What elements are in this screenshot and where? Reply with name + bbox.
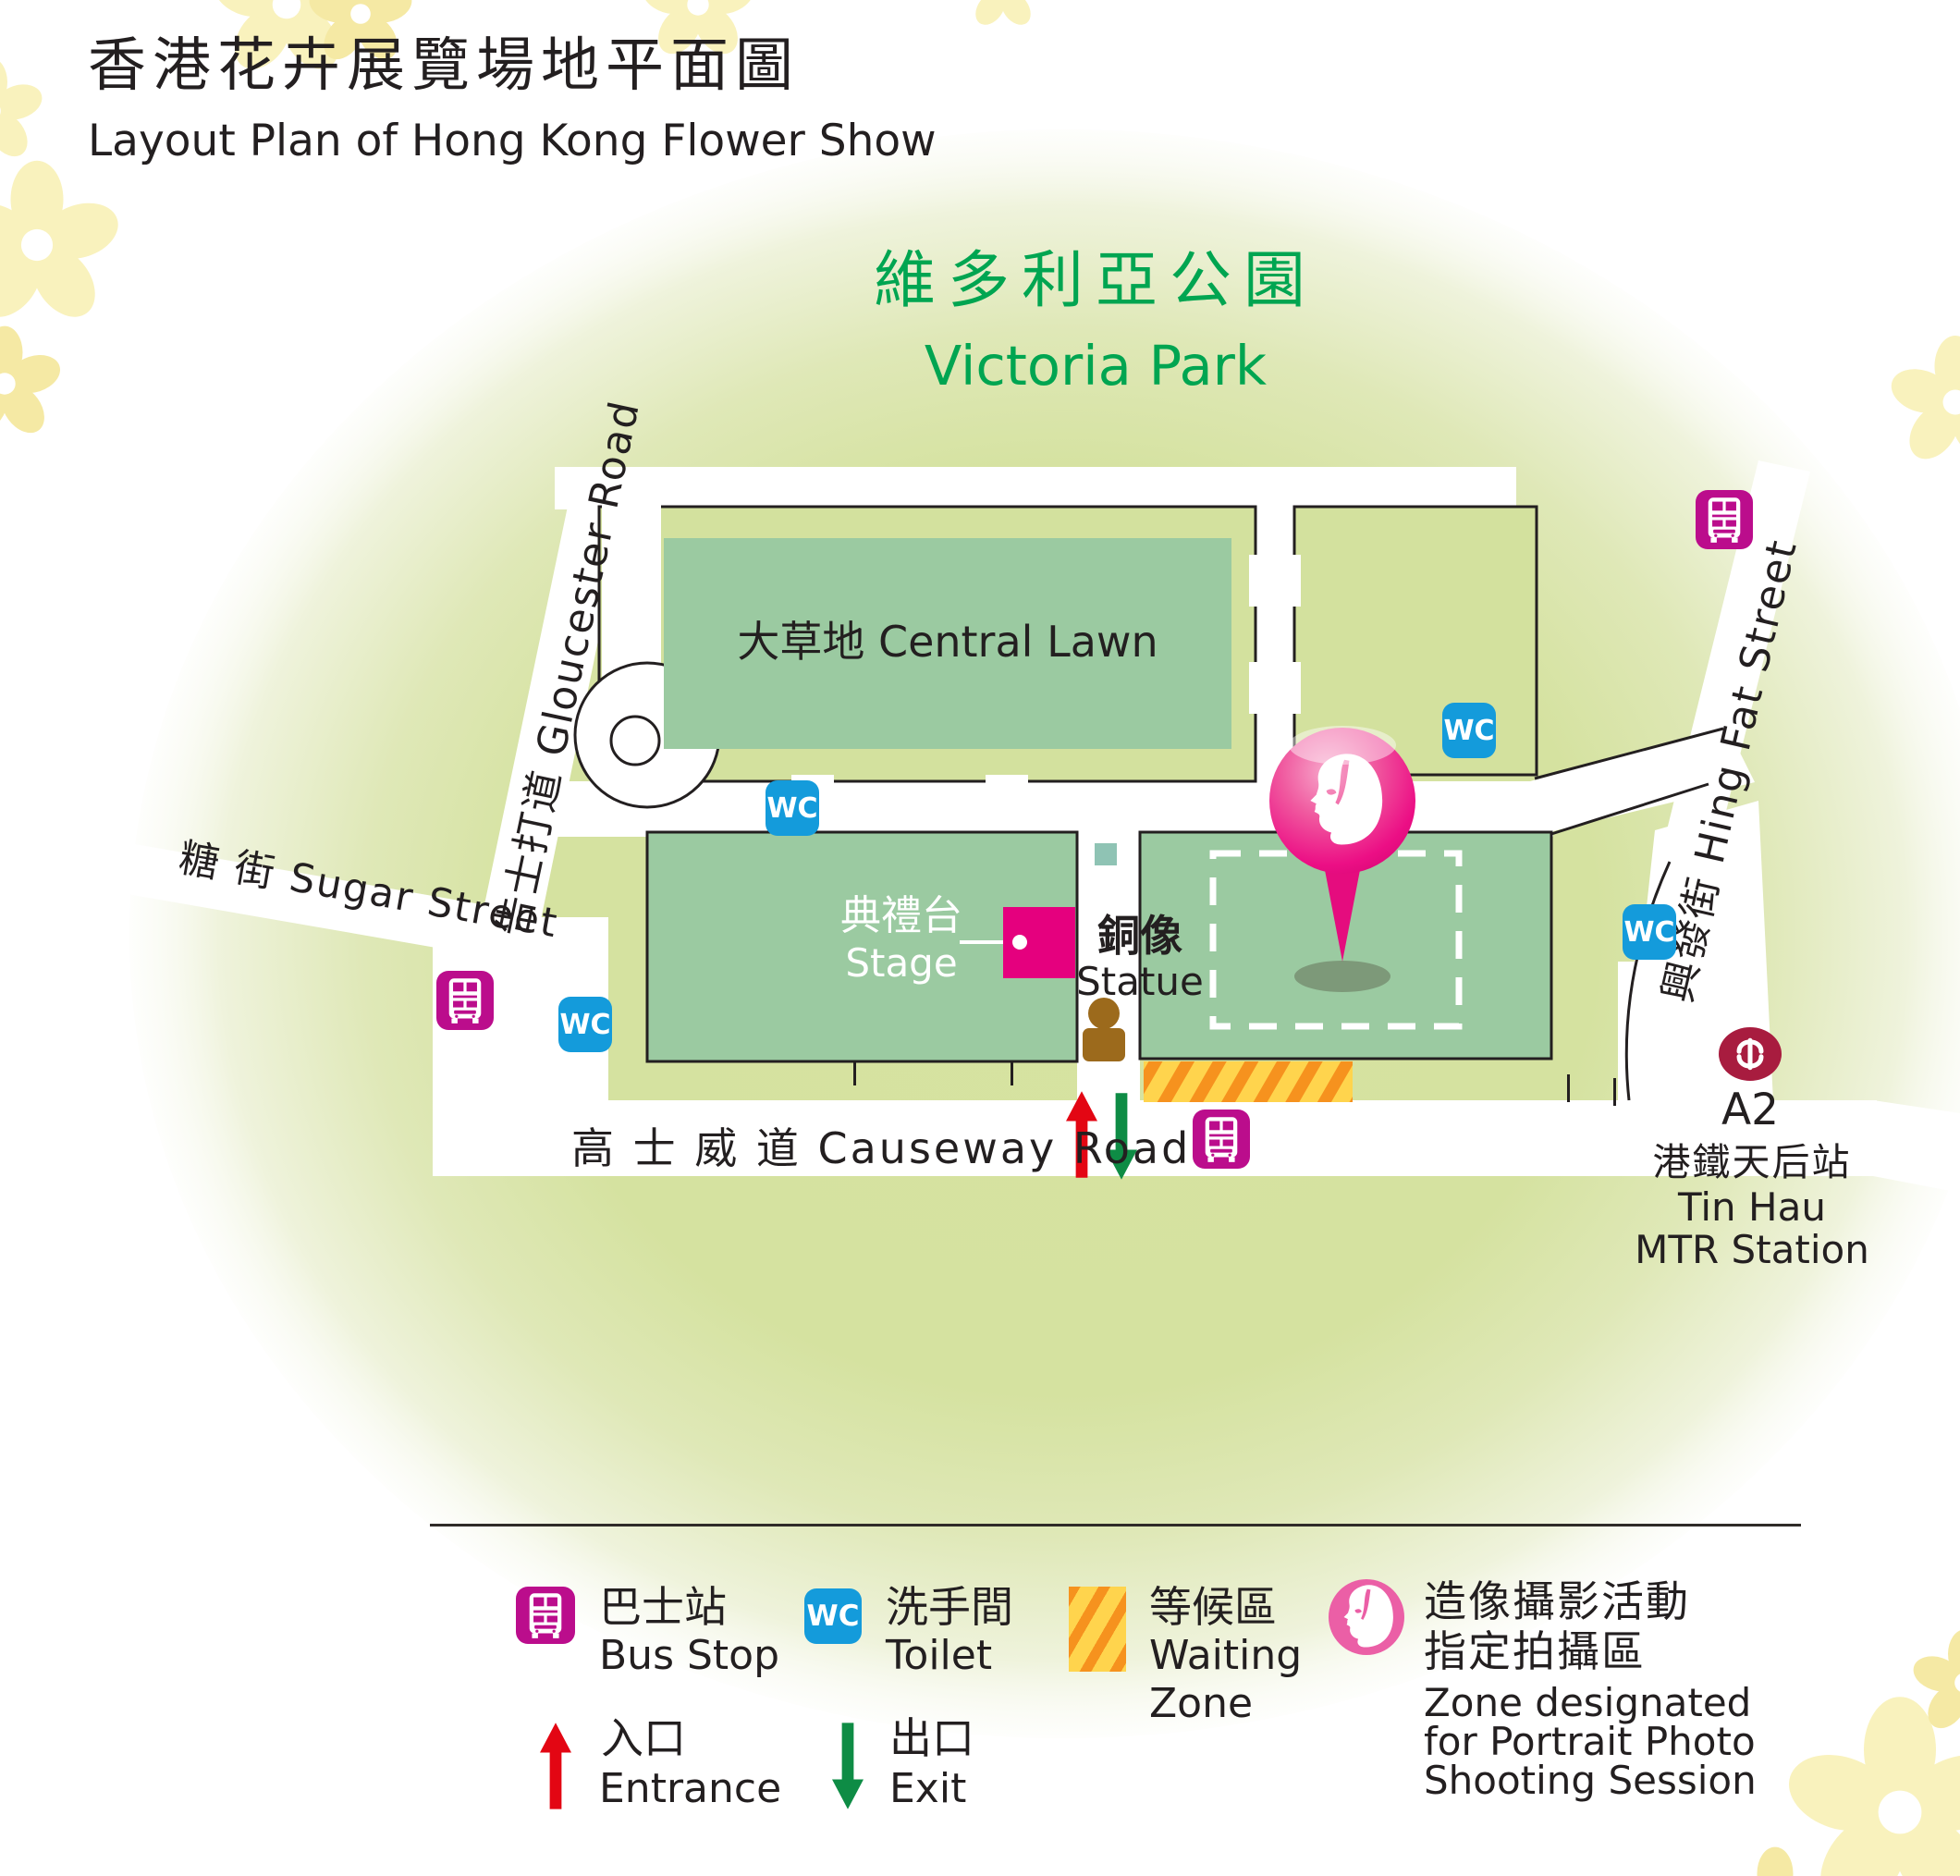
mtr-station-en2: MTR Station (1632, 1230, 1872, 1270)
stage-label-zh: 典禮台 (827, 895, 975, 938)
wc-text: WC (1443, 715, 1494, 747)
wc-text: WC (559, 1009, 610, 1041)
legend-photo-en2: for Portrait Photo (1424, 1722, 1756, 1762)
stage-label-en: Stage (827, 943, 975, 984)
legend-exit-zh: 出口 (889, 1716, 974, 1760)
toilet-icon-mid-path: WC (766, 780, 819, 836)
park-name-en: Victoria Park (800, 337, 1391, 395)
toilet-icon-north-east: WC (1442, 703, 1496, 758)
legend-toilet-zh: 洗手間 (886, 1585, 1013, 1629)
legend-toilet-en: Toilet (886, 1635, 992, 1677)
mtr-exit-label: A2 (1717, 1087, 1783, 1133)
legend-entrance-zh: 入口 (601, 1716, 686, 1760)
legend-bus-stop-icon (516, 1587, 575, 1644)
legend-waiting-en2: Zone (1149, 1683, 1253, 1725)
mtr-icon (1719, 1027, 1782, 1081)
legend-photo-en1: Zone designated (1424, 1683, 1751, 1723)
legend-photo-zh2: 指定拍攝區 (1424, 1629, 1646, 1674)
waiting-zone-strip (1144, 1061, 1353, 1102)
legend-waiting-zh: 等候區 (1149, 1585, 1277, 1629)
toilet-icon-east: WC (1623, 904, 1676, 960)
roundabout-island (611, 717, 659, 765)
bus-stop-icon-hing-fat (1696, 490, 1753, 549)
mtr-station-zh: 港鐵天后站 (1632, 1143, 1872, 1183)
central-lawn-label: 大草地 Central Lawn (670, 619, 1225, 664)
toilet-icon-south-west: WC (558, 997, 612, 1052)
legend-waiting-en1: Waiting (1149, 1635, 1302, 1677)
wc-text: WC (1623, 916, 1674, 949)
page-title-zh: 香港花卉展覽場地平面圖 (88, 35, 800, 96)
road-label-causeway: 高 士 威 道 Causeway Road (571, 1126, 1191, 1171)
bus-stop-icon-causeway (1193, 1110, 1250, 1169)
flower-show-layout-plan: 香港花卉展覽場地平面圖 Layout Plan of Hong Kong Flo… (0, 0, 1960, 1876)
bus-stop-icon-sugar-street (436, 971, 494, 1030)
legend-toilet-icon: WC (804, 1588, 862, 1644)
page-title-en: Layout Plan of Hong Kong Flower Show (88, 118, 937, 164)
teal-marker (1095, 843, 1117, 865)
legend-divider (430, 1524, 1801, 1527)
statue-label-zh: 銅像 (1071, 913, 1209, 958)
legend-waiting-zone-swatch (1069, 1587, 1126, 1672)
mtr-station-en1: Tin Hau (1632, 1187, 1872, 1228)
legend-exit-en: Exit (889, 1768, 966, 1810)
legend-entrance-en: Entrance (599, 1768, 781, 1810)
park-name-zh: 維多利亞公園 (800, 248, 1391, 313)
legend-bus-en: Bus Stop (599, 1635, 779, 1677)
legend-photo-zone-icon (1329, 1579, 1404, 1655)
legend-photo-zh1: 造像攝影活動 (1424, 1579, 1690, 1624)
legend-photo-en3: Shooting Session (1424, 1760, 1757, 1801)
wc-text: WC (807, 1600, 860, 1633)
wc-text: WC (766, 792, 817, 825)
legend-entrance-arrow (540, 1720, 571, 1812)
legend-exit-arrow (832, 1720, 864, 1812)
pin-shadow (1294, 961, 1390, 992)
road-top-path (555, 467, 1516, 509)
legend-bus-zh: 巴士站 (599, 1585, 727, 1629)
statue-label-en: Statue (1061, 962, 1219, 1002)
